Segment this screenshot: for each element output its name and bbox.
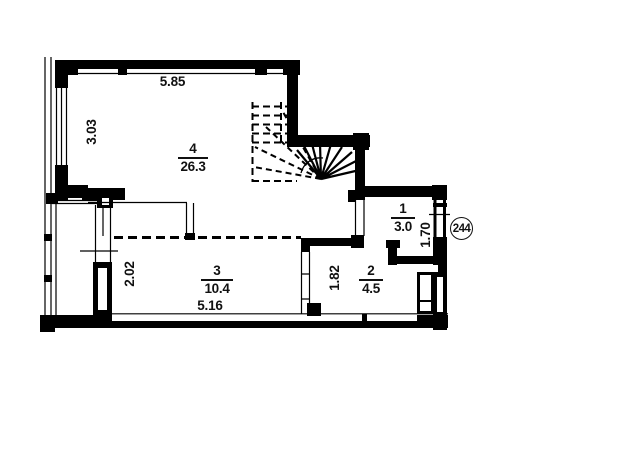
room-2-area: 4.5 [359, 281, 383, 297]
dim-room3-depth: 2.02 [122, 254, 138, 294]
apartment-number: 244 [453, 223, 470, 235]
dim-room3-width: 5.16 [185, 298, 235, 314]
room-4-label: 4 26.3 [178, 142, 208, 175]
floor-plan: 5.85 3.03 5.16 2.02 1.82 1.70 4 26.3 3 1… [0, 0, 620, 460]
room-1-label: 1 3.0 [391, 202, 415, 235]
room-4-number: 4 [178, 142, 208, 159]
room-1-area: 3.0 [391, 219, 415, 235]
dim-room1-depth: 1.70 [418, 215, 434, 255]
dim-left-height: 3.03 [84, 112, 100, 152]
room-4-area: 26.3 [178, 159, 208, 175]
dim-room2-depth: 1.82 [327, 258, 343, 298]
floor-plan-drawing [0, 0, 620, 460]
room-3-area: 10.4 [201, 281, 233, 297]
room-2-label: 2 4.5 [359, 264, 383, 297]
room-1-number: 1 [391, 202, 415, 219]
dim-top-width: 5.85 [140, 74, 205, 90]
apartment-number-badge: 244 [450, 217, 473, 240]
room-3-label: 3 10.4 [201, 264, 233, 297]
room-3-number: 3 [201, 264, 233, 281]
room-2-number: 2 [359, 264, 383, 281]
